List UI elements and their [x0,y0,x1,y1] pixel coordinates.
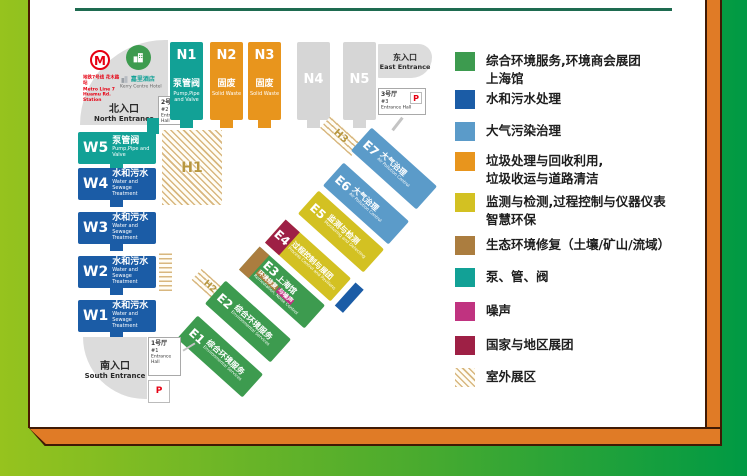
legend-swatch-crimson [455,336,475,355]
hall-n1: N1 泵管阀 Pump,Pipe and Valve [170,42,203,120]
top-divider-line [75,8,672,11]
parking-icon-east: P [410,92,422,104]
hall-w4: W4 水和污水Water and Sewage Treatment [78,168,156,200]
outdoor-strip-h2 [159,253,172,291]
hotel-building-glyph [132,51,145,64]
hall-w5: W5 泵管阀Pump,Pipe and Valve [78,132,156,164]
hall-n3-id: N3 [248,48,281,63]
hall-n3-category-en: Solid Waste [248,91,281,97]
hotel-name-cn: 嘉里酒店 [131,76,155,83]
hall-w2: W2 水和污水Water and Sewage Treatment [78,256,156,288]
legend-item-pump-pipe-valve: 泵、管、阀 [455,268,549,287]
hall-w3: W3 水和污水Water and Sewage Treatment [78,212,156,244]
hall-n2-category-cn: 固废 [210,76,243,89]
hall-n4-id: N4 [297,72,330,87]
legend-item-remediation: 生态环境修复（土壤/矿山/流域） [455,236,670,255]
legend-label-line2: 垃圾收运与道路清洁 [486,171,599,186]
north-entrance-area: M 地铁7号线 花木路站 Metro Line 7 Huamu Rd. Stat… [80,40,168,125]
legend-swatch-yellow [455,193,475,212]
hall-w3-id: W3 [83,220,108,236]
legend-label: 国家与地区展团 [486,337,574,352]
hall-n4: N4 [297,42,330,120]
east-entrance-en: East Entrance [378,63,432,71]
legend-item-outdoor: 室外展区 [455,368,536,387]
legend-swatch-orange [455,152,475,171]
legend-item-water-sewage: 水和污水处理 [455,90,561,109]
hall-n5: N5 [343,42,376,120]
hall-w4-category-en: Water and Sewage Treatment [112,180,156,197]
legend-label: 室外展区 [486,369,536,384]
hall-w2-category-en: Water and Sewage Treatment [112,268,156,285]
legend-item-monitoring: 监测与检测,过程控制与仪器仪表智慧环保 [455,193,666,228]
hall-w2-id: W2 [83,264,108,280]
legend-label: 监测与检测,过程控制与仪器仪表 [486,194,666,209]
hall-w5-category-en: Pump,Pipe and Valve [112,147,156,159]
hall-w1: W1 水和污水Water and Sewage Treatment [78,300,156,332]
hall-w5-id: W5 [83,140,108,156]
parking-icon-south: P [148,380,170,403]
hall-n2: N2 固废 Solid Waste [210,42,243,120]
legend-label-line2: 智慧环保 [486,212,536,227]
legend-label-line2: 上海馆 [486,71,524,86]
legend-swatch-brown [455,236,475,255]
legend-label: 水和污水处理 [486,91,561,106]
east-entrance-area: 东入口 East Entrance [378,44,432,78]
legend-label: 泵、管、阀 [486,269,549,284]
metro-station-label: 地铁7号线 花木路站 Metro Line 7 Huamu Rd. Statio… [83,75,123,103]
hotel-icon [126,45,151,70]
north-entrance-cn: 北入口 [82,100,166,115]
outdoor-h1-label: H1 [181,160,202,176]
south-entrance-en: South Entrance [83,372,147,380]
legend-label: 大气污染治理 [486,123,561,138]
legend-swatch-light-blue [455,122,475,141]
entrance-hall-1-en: Entrance Hall [151,354,175,365]
legend-label: 噪声 [486,303,511,318]
hall-n1-category-en: Pump,Pipe and Valve [170,91,203,104]
hall-w1-category-en: Water and Sewage Treatment [112,312,156,329]
entrance-hall-1-number: #1 [151,348,178,354]
hall-n2-id: N2 [210,48,243,63]
legend-item-country-pavilions: 国家与地区展团 [455,336,574,355]
metro-station-cn: 地铁7号线 花木路站 [83,75,119,86]
legend-item-air-pollution: 大气污染治理 [455,122,561,141]
board-frame-right [705,0,722,445]
entrance-hall-3-en: Entrance Hall [381,105,419,111]
legend-swatch-magenta [455,302,475,321]
legend-swatch-teal [455,268,475,287]
entrance-hall-1-box: 1号厅 #1 Entrance Hall [148,337,181,376]
legend-item-environmental-services: 综合环境服务,环境商会展团上海馆 [455,52,641,87]
legend-swatch-blue [455,90,475,109]
entrance-hall-3-box: 3号厅 #3 Entrance Hall P [378,88,426,115]
building-icon [120,75,129,84]
legend-swatch-hatched [455,368,475,387]
hall-n1-category-cn: 泵管阀 [170,76,203,89]
hall-n5-id: N5 [343,72,376,87]
south-entrance-cn: 南入口 [83,357,147,372]
floor-plan-poster: M 地铁7号线 花木路站 Metro Line 7 Huamu Rd. Stat… [0,0,747,476]
legend-label: 垃圾处理与回收利用, [486,153,603,168]
board-frame-bottom [28,427,722,446]
east-entrance-cn: 东入口 [378,52,432,63]
hall-w3-category-en: Water and Sewage Treatment [112,224,156,241]
legend-label: 生态环境修复（土壤/矿山/流域） [486,237,670,252]
outdoor-area-h1: H1 [162,130,222,205]
entrance-hall-1-cn: 1号厅 [151,340,178,348]
hall-n1-id: N1 [170,48,203,63]
hall-n3: N3 固废 Solid Waste [248,42,281,120]
hall-w1-id: W1 [83,308,108,324]
legend-item-waste: 垃圾处理与回收利用,垃圾收运与道路清洁 [455,152,603,187]
shanghai-metro-logo-icon: M [90,50,110,70]
legend-item-noise: 噪声 [455,302,511,321]
kerry-hotel-label: 嘉里酒店 Kerry Centre Hotel [120,75,168,91]
hall-n2-category-en: Solid Waste [210,91,243,97]
hotel-name-en: Kerry Centre Hotel [120,84,163,90]
legend-label: 综合环境服务,环境商会展团 [486,53,641,68]
board-frame-bottom-face [30,429,720,444]
legend-swatch-green [455,52,475,71]
hall-w4-id: W4 [83,176,108,192]
hall-n3-category-cn: 固废 [248,76,281,89]
